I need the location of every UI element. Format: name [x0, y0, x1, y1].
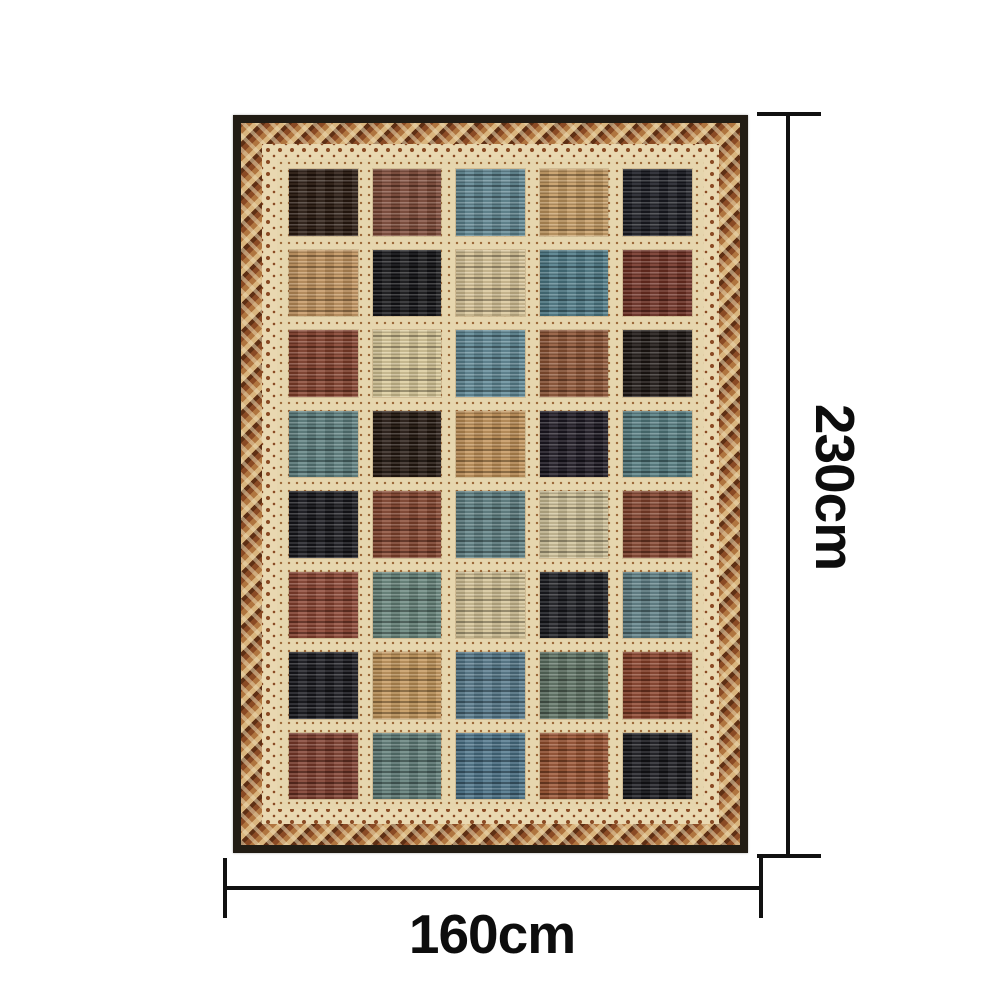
height-dimension-top-tick: [757, 112, 821, 116]
rug-square: [623, 491, 692, 558]
width-dimension-right-tick: [759, 858, 763, 918]
rug-square: [540, 491, 609, 558]
height-dimension-bottom-tick: [757, 854, 821, 858]
rug-square: [289, 491, 358, 558]
rug-square: [289, 733, 358, 800]
rug-square: [373, 169, 442, 236]
rug-zigzag-border: [241, 123, 740, 845]
height-dimension-label: 230cm: [803, 404, 867, 570]
rug-square: [373, 250, 442, 317]
rug-square: [456, 169, 525, 236]
rug-field: [277, 159, 704, 809]
rug-square: [373, 330, 442, 397]
rug-square: [540, 652, 609, 719]
rug-square: [456, 330, 525, 397]
rug-square: [540, 169, 609, 236]
rug-square: [373, 491, 442, 558]
rug-square: [373, 652, 442, 719]
width-dimension-label: 160cm: [409, 902, 575, 966]
rug-square: [289, 652, 358, 719]
rug-square: [623, 733, 692, 800]
rug-square: [540, 411, 609, 478]
width-dimension-left-tick: [223, 858, 227, 918]
rug-square: [540, 572, 609, 639]
rug-square: [540, 250, 609, 317]
rug-square: [456, 491, 525, 558]
product-image: 230cm 160cm: [0, 0, 1000, 1000]
rug-square: [456, 250, 525, 317]
rug-square: [289, 250, 358, 317]
rug-square: [623, 250, 692, 317]
rug-square: [623, 330, 692, 397]
rug-square: [456, 411, 525, 478]
rug-square: [623, 572, 692, 639]
rug-diamond-border: [262, 144, 719, 824]
rug-image: [233, 115, 748, 853]
rug-square: [623, 411, 692, 478]
rug-square: [456, 652, 525, 719]
rug-square: [373, 411, 442, 478]
rug-square: [289, 572, 358, 639]
rug-square: [373, 572, 442, 639]
width-dimension-line: [224, 886, 762, 890]
rug-square: [623, 652, 692, 719]
rug-square: [289, 169, 358, 236]
rug-square: [623, 169, 692, 236]
rug-square: [540, 330, 609, 397]
height-dimension-line: [786, 114, 790, 856]
rug-square: [289, 411, 358, 478]
rug-square: [456, 733, 525, 800]
rug-square: [289, 330, 358, 397]
rug-square: [540, 733, 609, 800]
rug-square: [456, 572, 525, 639]
rug-square: [373, 733, 442, 800]
